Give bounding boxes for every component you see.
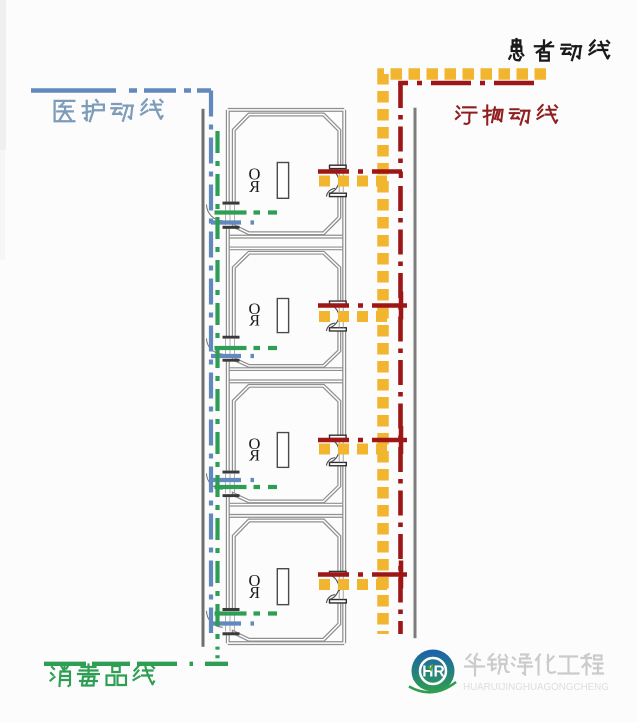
svg-text:HUARUIJINGHUAGONGCHENG: HUARUIJINGHUAGONGCHENG — [463, 682, 609, 693]
svg-text:R: R — [249, 313, 260, 330]
svg-text:HR: HR — [422, 664, 444, 681]
svg-text:R: R — [249, 177, 260, 196]
svg-text:R: R — [249, 583, 260, 602]
svg-text:R: R — [249, 447, 260, 465]
